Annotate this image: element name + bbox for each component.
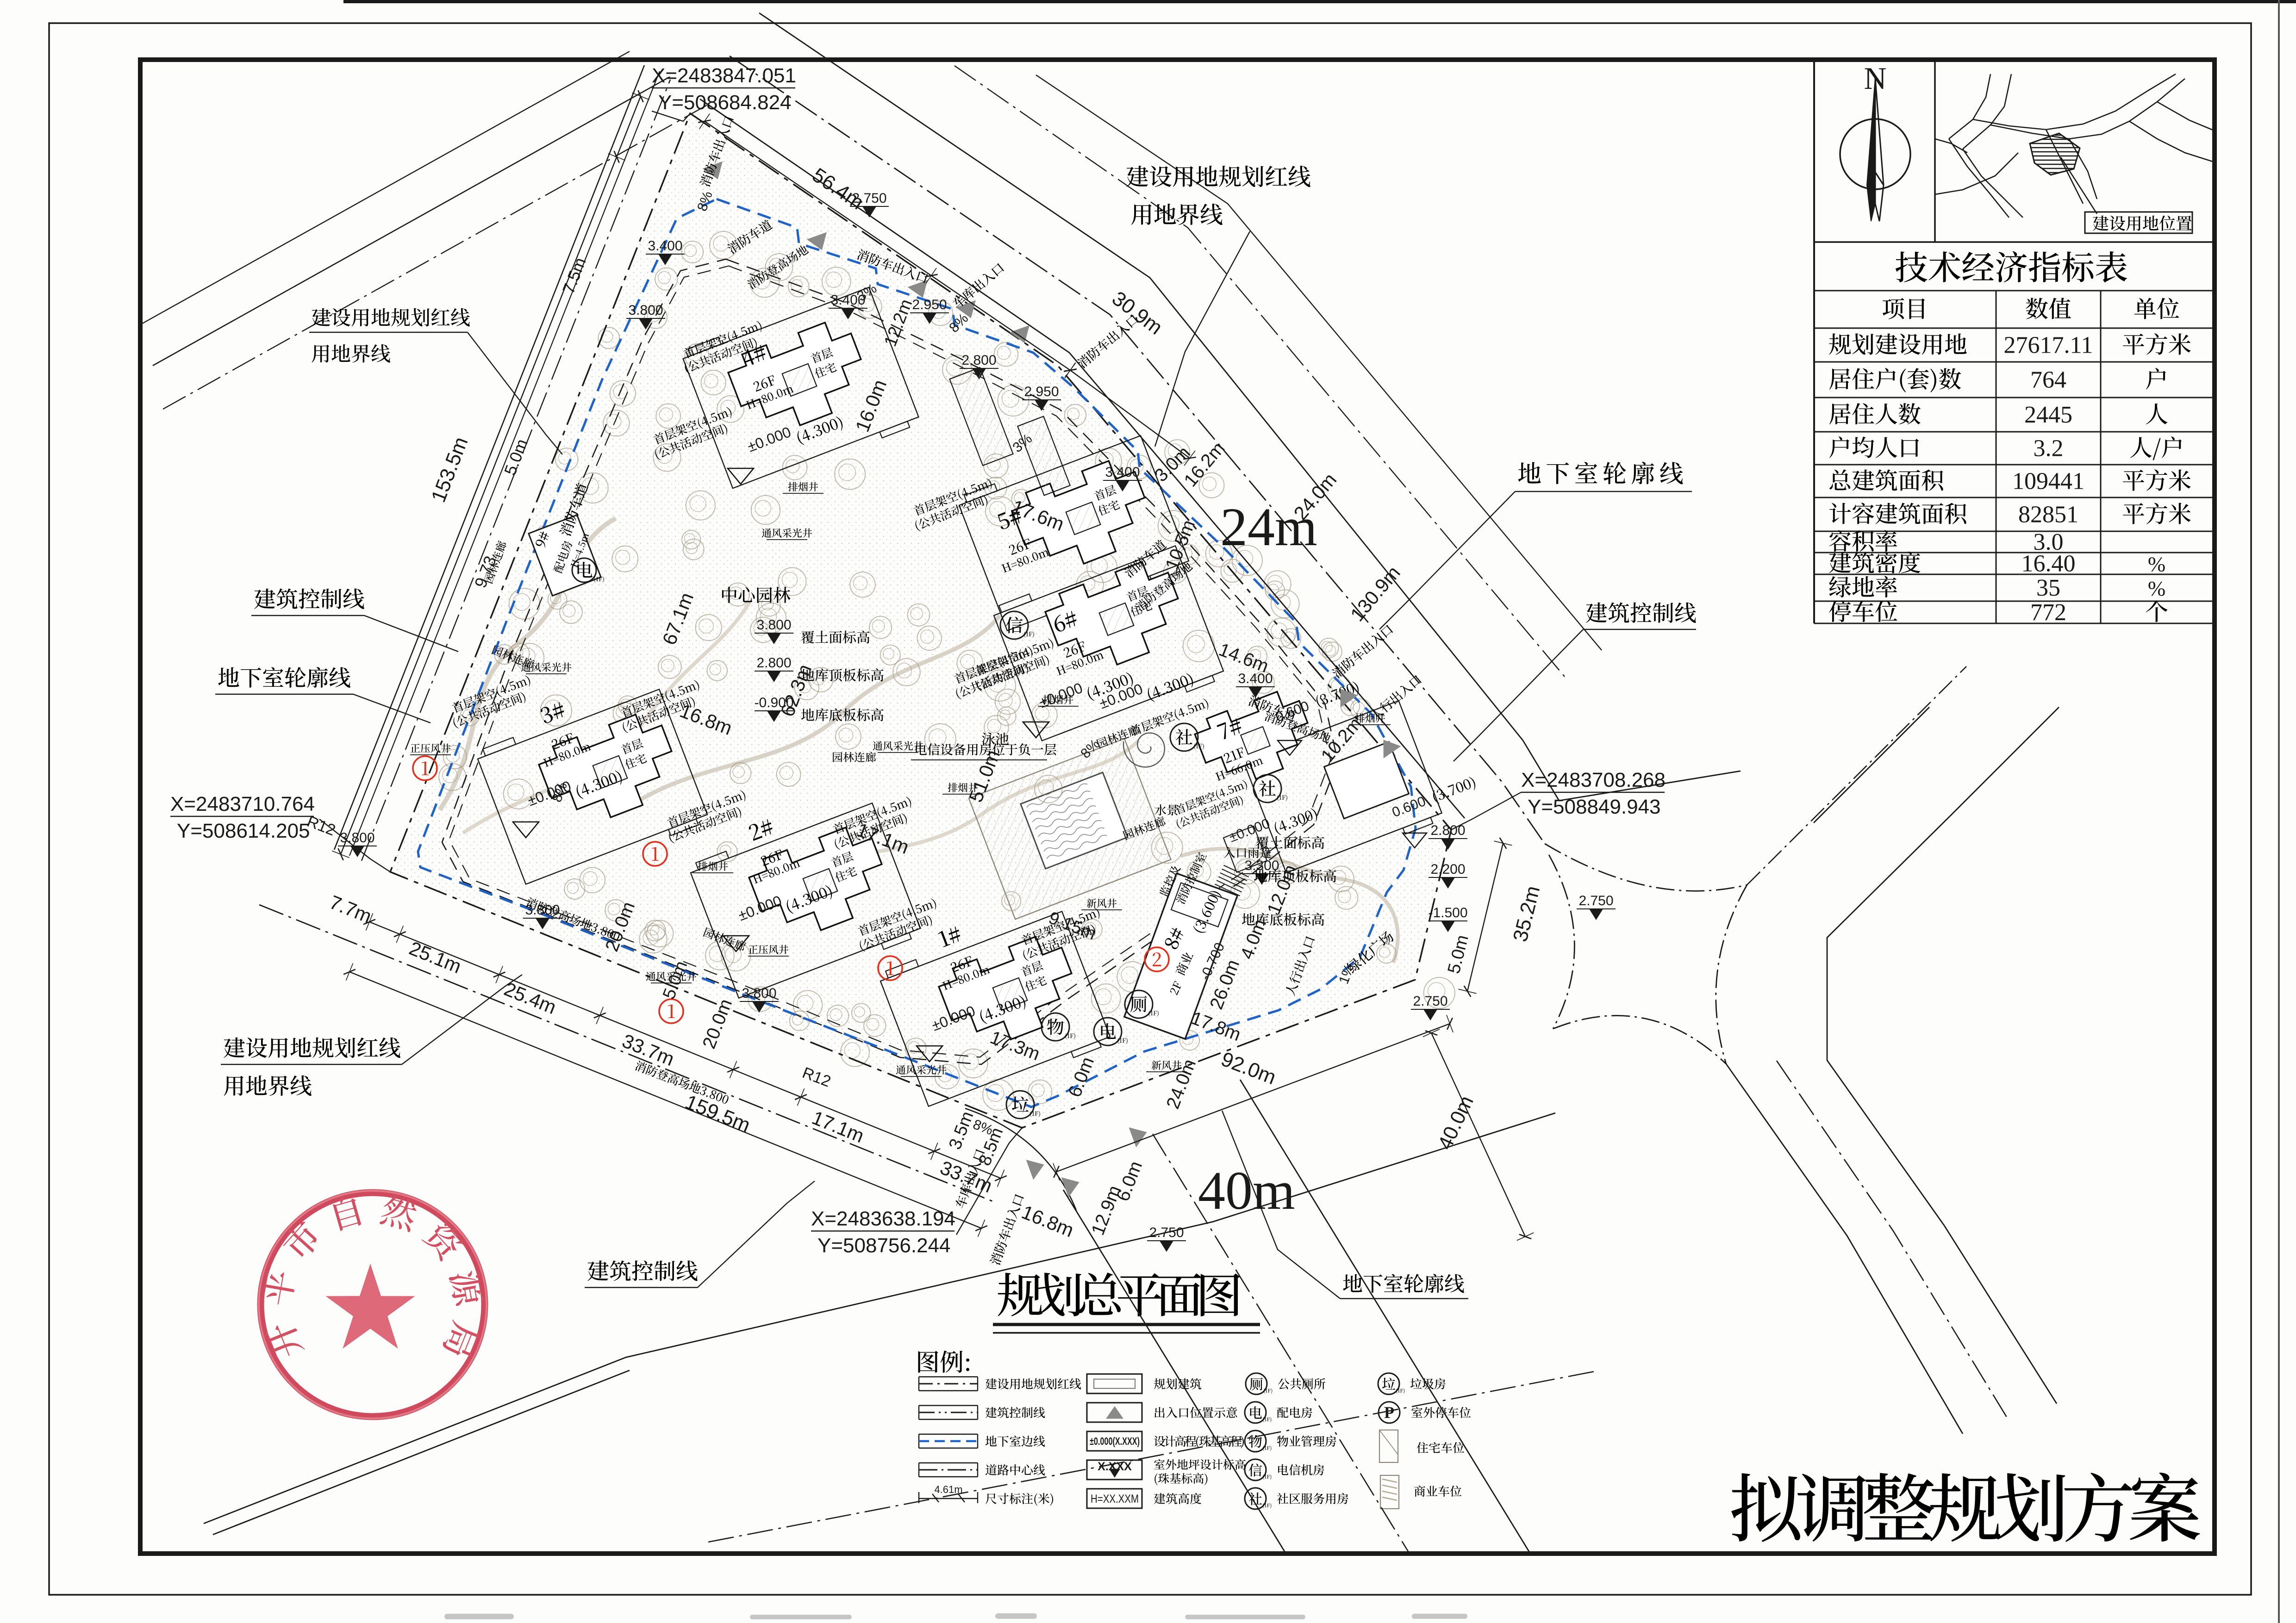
svg-text:16.40: 16.40 — [2021, 551, 2076, 577]
svg-text:2.800: 2.800 — [756, 655, 791, 671]
svg-text:%: % — [2148, 553, 2165, 576]
svg-text:2.750: 2.750 — [1149, 1225, 1184, 1240]
svg-text:3.2: 3.2 — [2034, 435, 2064, 462]
svg-text:3.400: 3.400 — [648, 238, 682, 254]
svg-text:2.200: 2.200 — [1430, 862, 1465, 877]
svg-text:2.950: 2.950 — [912, 297, 947, 312]
svg-text:2.750: 2.750 — [1413, 994, 1447, 1009]
svg-text:3.800: 3.800 — [742, 986, 776, 1001]
svg-text:N: N — [1864, 61, 1886, 96]
svg-text:24m: 24m — [1220, 497, 1317, 557]
svg-text:764: 764 — [2030, 367, 2066, 393]
svg-text:27617.11: 27617.11 — [2003, 332, 2093, 359]
svg-text:3.800: 3.800 — [628, 303, 663, 318]
svg-text:±0.000(X.XXX): ±0.000(X.XXX) — [1090, 1435, 1140, 1447]
svg-text:%: % — [2148, 577, 2165, 600]
svg-text:2.800: 2.800 — [961, 353, 996, 368]
svg-text:82851: 82851 — [2018, 502, 2078, 528]
svg-text:2.950: 2.950 — [1024, 384, 1059, 399]
svg-text:Y=508614.205: Y=508614.205 — [177, 820, 310, 842]
svg-text:X=2483708.268: X=2483708.268 — [1521, 769, 1666, 791]
svg-text:H=XX.XXM: H=XX.XXM — [1091, 1492, 1139, 1505]
svg-text:35: 35 — [2036, 575, 2060, 601]
svg-text:109441: 109441 — [2012, 468, 2084, 495]
svg-text:2.750: 2.750 — [1578, 893, 1613, 908]
svg-text:3.400: 3.400 — [1105, 465, 1140, 480]
svg-text:P: P — [1384, 1403, 1394, 1422]
svg-text:Y=508849.943: Y=508849.943 — [1528, 796, 1661, 818]
svg-text:772: 772 — [2030, 599, 2066, 626]
svg-text:3.800: 3.800 — [756, 617, 791, 633]
svg-text:X=2483847.051: X=2483847.051 — [652, 64, 796, 87]
svg-text:2445: 2445 — [2024, 402, 2072, 428]
svg-text:X=2483710.764: X=2483710.764 — [170, 793, 315, 815]
svg-text:X=2483638.194: X=2483638.194 — [811, 1207, 955, 1230]
svg-text:Y=508684.824: Y=508684.824 — [658, 91, 792, 114]
svg-text:40m: 40m — [1198, 1160, 1295, 1221]
svg-text:Y=508756.244: Y=508756.244 — [817, 1234, 951, 1257]
svg-text:-1.500: -1.500 — [1428, 905, 1467, 920]
